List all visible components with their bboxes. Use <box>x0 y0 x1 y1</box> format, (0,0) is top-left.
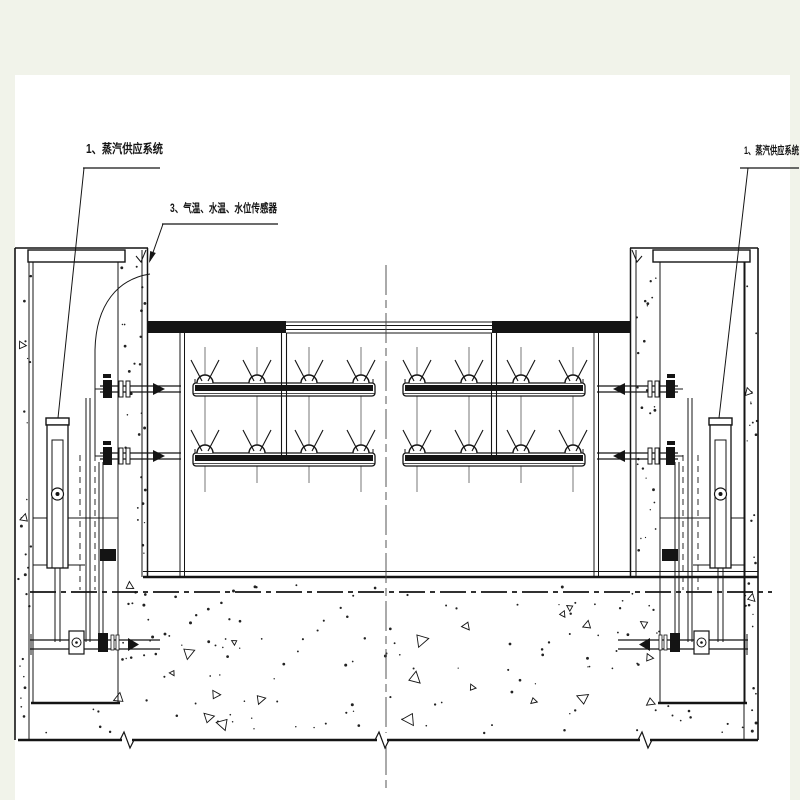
technical-drawing: 1、蒸汽供应系统 3、气温、水温、水位传感器 1、蒸汽供应系统 <box>0 0 800 800</box>
label-steam-supply-left: 1、蒸汽供应系统 <box>86 141 163 156</box>
drawing-sheet <box>15 75 790 800</box>
label-sensors: 3、气温、水温、水位传感器 <box>170 201 277 215</box>
label-steam-supply-right: 1、蒸汽供应系统 <box>744 143 799 157</box>
